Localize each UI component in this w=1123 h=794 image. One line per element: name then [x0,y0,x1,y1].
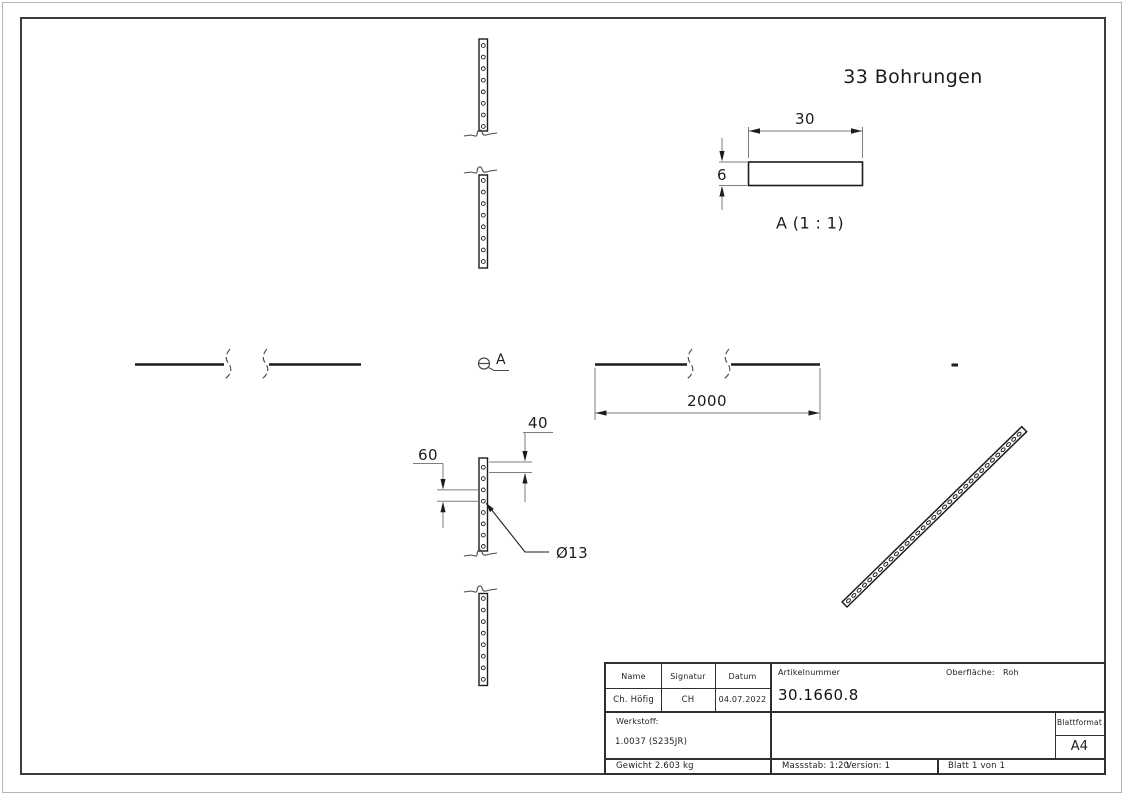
titleblock-col-signature: Signatur [661,664,715,688]
titleblock-weight: Gewicht 2.603 kg [616,761,694,771]
titleblock-col-name: Name [606,664,661,688]
titleblock-date: 04.07.2022 [715,688,770,711]
isometric-view [842,427,1027,607]
title-block: Name Signatur Datum Ch. Höfig CH 04.07.2… [604,662,1106,775]
titleblock-scale: Massstab: 1:20 [782,761,849,771]
detail-marker-label: A [496,352,506,368]
dim-pitch-label: 60 [418,446,438,464]
titleblock-article-label: Artikelnummer [778,668,840,677]
detail-view-a [719,127,863,210]
titleblock-name: Ch. Höfig [606,688,661,711]
titleblock-version: Version: 1 [846,761,890,771]
titleblock-sheet-format-label: Blattformat [1055,711,1104,734]
titleblock-article-number: 30.1660.8 [778,686,859,704]
titleblock-surface-label: Oberfläche: [946,668,995,677]
dim-thickness-label: 6 [717,166,727,184]
titleblock-signature: CH [661,688,715,711]
titleblock-sheet-format: A4 [1055,735,1104,758]
titleblock-surface-value: Roh [1003,668,1019,677]
titleblock-material-value: 1.0037 (S235JR) [615,737,687,747]
titleblock-sheet: Blatt 1 von 1 [948,761,1005,771]
dim-end-distance-label: 40 [528,414,548,432]
edge-view-left [135,349,361,379]
dim-width-label: 30 [795,110,815,128]
front-view-lower [413,433,553,686]
end-view [952,364,959,367]
titleblock-col-date: Datum [715,664,770,688]
holes-count-note: 33 Bohrungen [843,66,982,88]
dim-hole-diameter-label: Ø13 [556,544,588,562]
dim-length-label: 2000 [687,392,727,410]
detail-view-title: A (1 : 1) [776,214,844,233]
drawing-sheet: { "labels": { "holes_note": "33 Bohrunge… [0,0,1123,794]
titleblock-material-label: Werkstoff: [616,717,659,726]
front-view-upper [464,39,497,268]
